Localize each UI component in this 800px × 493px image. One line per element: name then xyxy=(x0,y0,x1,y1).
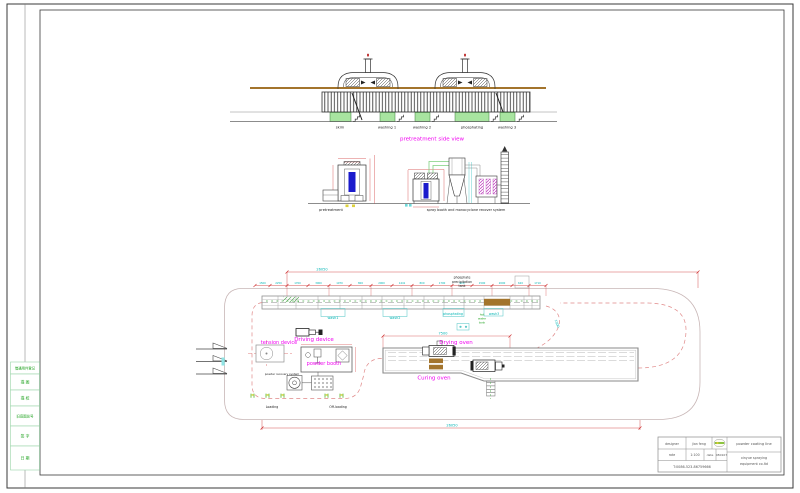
wash1-label: wash1 xyxy=(328,316,339,320)
tank-row xyxy=(330,113,524,122)
company-name: xinyue spraying xyxy=(741,456,767,460)
powder-booth-plan xyxy=(287,345,356,391)
margin-row-label: 借通用件登记 xyxy=(15,365,36,370)
driving-device xyxy=(296,329,323,337)
dim-chain: 1710 xyxy=(534,281,541,285)
wash2-label: wash2 xyxy=(390,316,401,320)
margin-row-label: 描 图 xyxy=(21,379,30,384)
dim-chain: 1500 xyxy=(259,281,266,285)
phone-number: T:0086-523-86759666 xyxy=(672,465,711,469)
margin-row-label: 描 校 xyxy=(21,395,30,400)
drawing-sheet: 借通用件登记 描 图 描 校 旧底图总号 签 字 日 期 skim washin… xyxy=(0,0,800,493)
dim-total-top: 26050 xyxy=(316,268,327,272)
company-name: equipment co.ltd xyxy=(740,462,768,466)
exhaust-fan-unit xyxy=(435,54,495,89)
station-label: skim xyxy=(336,126,345,130)
designer-name: jian feng xyxy=(691,442,706,446)
oven-block: 7500 xyxy=(382,331,639,399)
wash3-label: wash3 xyxy=(489,312,499,316)
project-title: powder coating line xyxy=(736,442,772,446)
rate-value: 1:100 xyxy=(690,453,699,457)
dim-chain: 800 xyxy=(358,281,363,285)
pretreatment-side-view: skim washing 1 washing 2 phosphating was… xyxy=(230,54,557,143)
company-logo-icon xyxy=(714,439,725,447)
tension-device-label: tension device xyxy=(261,340,297,346)
pretreatment-station xyxy=(323,155,375,207)
dim-chain: 800 xyxy=(420,281,425,285)
dim-chain: 2250 xyxy=(275,281,282,285)
exhaust-stack xyxy=(501,146,509,204)
dim-chain: 620 xyxy=(518,281,523,285)
margin-row-label: 日 期 xyxy=(21,455,30,460)
phosphating-label: phosphating xyxy=(443,312,463,316)
dim-total-bottom: 26050 xyxy=(446,424,457,428)
workpiece-bar xyxy=(349,172,356,192)
pretreatment-label: pretreatment xyxy=(319,208,344,212)
dim-chain: 2000 xyxy=(499,281,506,285)
date-label: date xyxy=(707,453,714,457)
station-label: phosphating xyxy=(461,126,483,130)
dim-oven: 7500 xyxy=(439,331,448,335)
side-view-title: pretreatment side view xyxy=(400,137,465,143)
drying-oven-label: Drying oven xyxy=(439,340,473,346)
margin-row-label: 旧底图总号 xyxy=(17,413,35,418)
bottom-dimension: 26050 xyxy=(261,420,642,430)
spray-booth-front xyxy=(405,162,449,208)
phosphating-section xyxy=(484,299,510,306)
powder-recovery-label: powder recovery system xyxy=(265,372,300,376)
station-label: washing 3 xyxy=(498,126,516,130)
dim-chain: 1970 xyxy=(336,281,343,285)
loading-label: Loading xyxy=(266,405,279,409)
plan-view: 26050 1500 2250 1700 3000 1970 800 2000 … xyxy=(196,268,700,430)
title-block: designer jian feng rate 1:100 date 08010… xyxy=(658,437,781,472)
dim-chain: 1441 xyxy=(399,281,406,285)
monocyclone xyxy=(447,158,480,204)
dim-chain: 1500 xyxy=(479,281,486,285)
station-label: washing 2 xyxy=(413,126,431,130)
station-label: washing 1 xyxy=(378,126,396,130)
margin-table: 借通用件登记 描 图 描 校 旧底图总号 签 字 日 期 xyxy=(11,362,40,470)
workpiece-bar xyxy=(424,183,429,199)
pretreatment-tunnel-plan: wash1 wash2 phosphating wash3 hot water … xyxy=(262,296,540,330)
rate-label: rate xyxy=(669,453,676,457)
offloading-label: Off-loading xyxy=(329,405,347,409)
note-line: tank xyxy=(458,284,465,288)
curing-oven-label: Curing oven xyxy=(417,376,451,382)
date-value: 080107 xyxy=(716,453,728,457)
driving-device-label: Driving device xyxy=(294,337,334,343)
oven-burner xyxy=(471,360,505,372)
sheet-border xyxy=(7,4,793,488)
dim-chain: 1700 xyxy=(439,281,446,285)
booth-system-label: spray booth and monocyclone recover syst… xyxy=(427,208,506,212)
recovery-filter xyxy=(476,176,501,204)
duct-pipe xyxy=(429,162,449,174)
front-views: pretreatment spray booth and monocyclone… xyxy=(308,146,530,212)
hot-water-note: tank xyxy=(479,321,486,325)
dim-chain: 2000 xyxy=(378,281,385,285)
dim-chain: 1700 xyxy=(294,281,301,285)
loading-area: Loading Off-loading xyxy=(251,394,347,409)
flow-direction-arrows xyxy=(196,343,227,374)
margin-row-label: 签 字 xyxy=(21,433,30,438)
exhaust-fan-unit xyxy=(338,54,398,89)
dim-chain: 3000 xyxy=(315,281,322,285)
cad-drawing: 借通用件登记 描 图 描 校 旧底图总号 签 字 日 期 skim washin… xyxy=(0,0,800,493)
designer-label: designer xyxy=(665,442,680,446)
powder-booth-label: powder booth xyxy=(307,361,342,367)
